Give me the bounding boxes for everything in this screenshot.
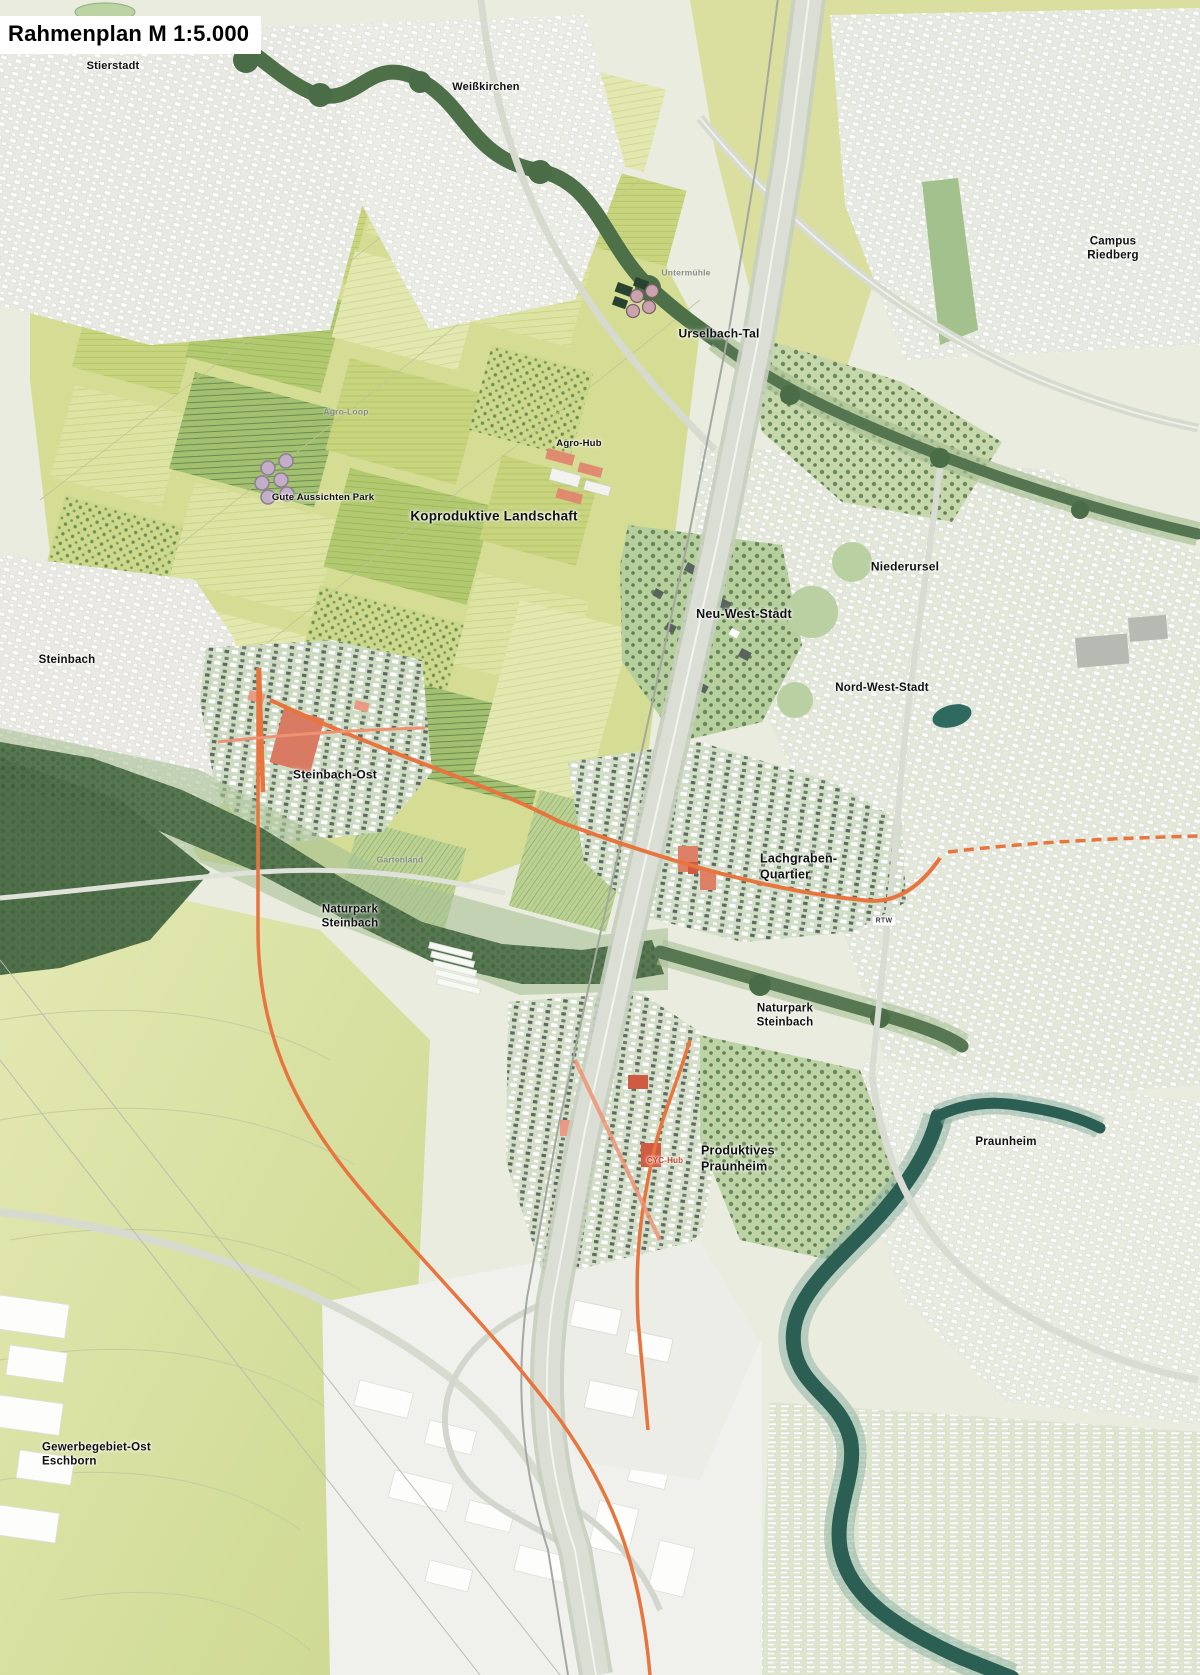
masterplan-map: StierstadtWeißkirchenCampus RiedbergUrse… <box>0 0 1200 1675</box>
map-artwork <box>0 0 1200 1675</box>
map-title: Rahmenplan M 1:5.000 <box>0 16 261 54</box>
